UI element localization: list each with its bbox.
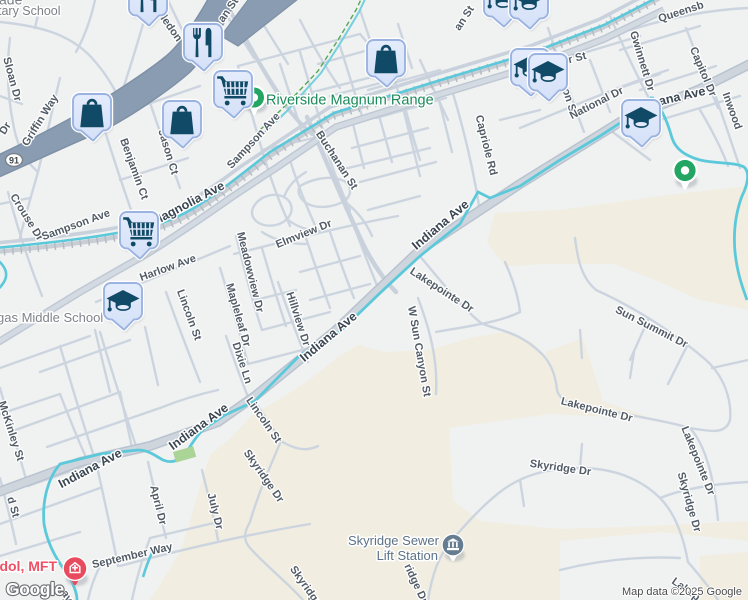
svg-text:udol, MFT: udol, MFT [0, 558, 57, 574]
svg-text:91: 91 [9, 156, 19, 166]
svg-text:gas Middle School: gas Middle School [0, 310, 103, 325]
svg-text:Skyridge Sewer: Skyridge Sewer [348, 533, 440, 548]
svg-text:tary School: tary School [0, 4, 61, 18]
svg-text:Riverside Magnum Range: Riverside Magnum Range [266, 93, 434, 109]
svg-text:Google: Google [6, 579, 65, 599]
svg-text:Lift Station: Lift Station [377, 548, 438, 563]
svg-text:Map data ©2025 Google: Map data ©2025 Google [622, 586, 742, 598]
